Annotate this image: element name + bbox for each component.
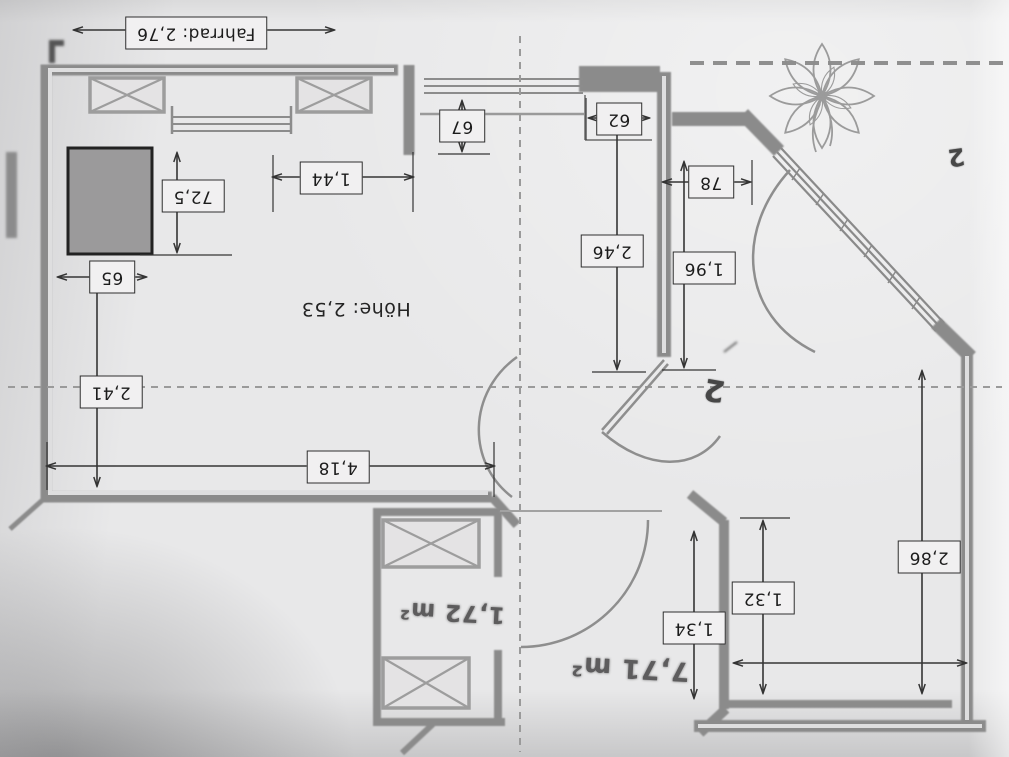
- dimension-label-1-34: 1,34: [662, 612, 725, 645]
- dimension-label-67: 67: [439, 110, 485, 143]
- dimension-label-1-44: 1,44: [299, 162, 362, 195]
- floor-plan-photo: Fahrrad: 2,76 72,5 65 1,44 67 62 2,46 78…: [0, 0, 1009, 757]
- dimension-label-1-96: 1,96: [672, 252, 735, 285]
- door-arc-bath: [521, 520, 648, 647]
- room-area-label-small: 1,72 m²: [398, 596, 505, 628]
- window-top-left: [172, 106, 291, 134]
- door-arcs: [479, 170, 815, 647]
- window-diagonal: [773, 148, 944, 331]
- dimension-label-62: 62: [596, 103, 642, 136]
- dimension-label-2-41: 2,41: [79, 376, 142, 409]
- door-arc-hall-left: [479, 357, 517, 497]
- flower-sketch: [770, 44, 874, 152]
- dashed-lines: [8, 36, 1004, 752]
- door-arc-top-right: [753, 170, 815, 352]
- dimension-label-72-5: 72,5: [161, 180, 224, 213]
- outer-walls: [10, 65, 986, 733]
- dimension-label-2-86: 2,86: [897, 541, 960, 574]
- hatched-box-1: [90, 78, 164, 112]
- dimension-label-1-32: 1,32: [731, 582, 794, 615]
- dimension-label-2-46: 2,46: [580, 235, 643, 268]
- hatched-box-2: [297, 78, 371, 112]
- hatched-box-3: [383, 520, 479, 567]
- cabinet-rect: [68, 148, 152, 254]
- hatched-box-4: [383, 658, 469, 708]
- door-leaf-a: [602, 360, 668, 434]
- door-arc-hall-right: [602, 432, 720, 462]
- dimension-label-fahrrad: Fahrrad: 2,76: [125, 17, 267, 50]
- dimension-label-65: 65: [89, 261, 135, 294]
- ceiling-height-note: Höhe: 2,53: [301, 298, 410, 320]
- dimension-label-4-18: 4,18: [306, 451, 369, 484]
- dimension-label-78: 78: [688, 166, 734, 199]
- floor-plan-drawing: [0, 0, 1009, 757]
- room-area-label-large: 7,71 m²: [570, 650, 690, 686]
- wall-cores: [50, 70, 982, 726]
